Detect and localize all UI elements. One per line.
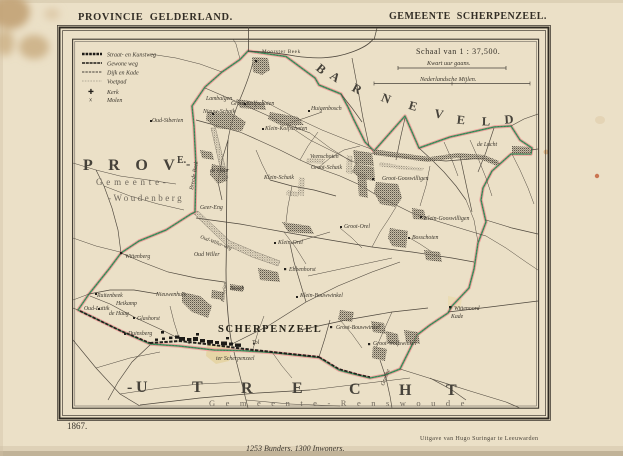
svg-text:☓: ☓ <box>89 98 92 104</box>
svg-text:Klein-Schaik: Klein-Schaik <box>263 175 294 181</box>
svg-text:Gemeente-Renswoude: Gemeente-Renswoude <box>209 398 475 408</box>
svg-text:PROVINCIE GELDERLAND.: PROVINCIE GELDERLAND. <box>78 12 233 23</box>
svg-text:1867.: 1867. <box>67 421 87 431</box>
svg-text:E: E <box>456 113 466 128</box>
svg-text:Schaal van 1 : 37,500.: Schaal van 1 : 37,500. <box>416 47 500 56</box>
svg-text:Groot-Kolfschoten: Groot-Kolfschoten <box>231 100 274 107</box>
svg-text:de Haag: de Haag <box>109 311 129 317</box>
svg-text:Geer-Eng: Geer-Eng <box>200 205 223 211</box>
svg-text:Veenschoten: Veenschoten <box>310 154 339 160</box>
svg-text:Dijk en Kade: Dijk en Kade <box>106 71 139 77</box>
svg-text:Groot-Schaik: Groot-Schaik <box>311 165 342 171</box>
svg-text:Oud Willer: Oud Willer <box>194 252 220 258</box>
svg-text:R: R <box>241 380 253 397</box>
svg-text:Nieuw-Schaik: Nieuw-Schaik <box>202 109 236 115</box>
svg-text:Bosschoten: Bosschoten <box>412 235 439 241</box>
svg-text:Uitgave van Hugo Suringar te L: Uitgave van Hugo Suringar te Leeuwarden <box>420 436 538 442</box>
svg-text:Klein-Gooswilligen: Klein-Gooswilligen <box>423 216 470 222</box>
svg-text:C: C <box>349 381 361 398</box>
svg-text:Ebbenhorst: Ebbenhorst <box>288 267 316 273</box>
svg-text:Tol: Tol <box>252 340 260 346</box>
svg-text:-Woudenberg: -Woudenberg <box>108 193 184 203</box>
svg-text:Nederlandsche Mijlen.: Nederlandsche Mijlen. <box>419 76 476 83</box>
svg-text:de Lucht: de Lucht <box>477 142 498 148</box>
svg-text:SCHERPENZEEL: SCHERPENZEEL <box>218 324 322 335</box>
svg-text:Groot-Bouwwinkel: Groot-Bouwwinkel <box>336 325 380 331</box>
svg-text:Groot-Wolfswinkel: Groot-Wolfswinkel <box>373 340 417 347</box>
svg-text:E: E <box>292 380 303 397</box>
svg-text:Kade: Kade <box>450 314 464 320</box>
svg-text:L: L <box>482 114 491 128</box>
svg-text:de Haar: de Haar <box>210 168 230 174</box>
svg-text:Moorster Beek: Moorster Beek <box>262 49 301 55</box>
svg-text:PROV: PROV <box>83 157 190 174</box>
svg-text:Kerk: Kerk <box>106 90 119 96</box>
svg-text:T: T <box>446 382 457 399</box>
svg-text:✚: ✚ <box>88 88 94 96</box>
svg-text:Oud-Luttik: Oud-Luttik <box>84 306 110 312</box>
svg-text:-: - <box>186 156 190 171</box>
svg-text:Molen: Molen <box>106 98 122 104</box>
svg-text:Heikamp: Heikamp <box>115 301 137 307</box>
svg-text:Ruitenbeek: Ruitenbeek <box>96 293 123 299</box>
svg-text:Lambalgen: Lambalgen <box>205 96 232 102</box>
svg-text:Straat- en Kunstweg: Straat- en Kunstweg <box>107 53 156 59</box>
svg-text:Duinsberg: Duinsberg <box>127 331 152 337</box>
svg-text:GEMEENTE SCHERPENZEEL.: GEMEENTE SCHERPENZEEL. <box>389 11 547 22</box>
svg-text:U: U <box>136 379 148 396</box>
svg-text:Voetpad: Voetpad <box>107 80 127 86</box>
svg-text:Klein-Orel: Klein-Orel <box>277 240 303 246</box>
svg-text:Klein-Bouwwinkel: Klein-Bouwwinkel <box>299 293 343 299</box>
svg-text:Klein-Kolfschoten: Klein-Kolfschoten <box>264 125 307 132</box>
svg-text:T: T <box>192 379 203 396</box>
svg-text:Kwart uur gaans.: Kwart uur gaans. <box>426 60 471 67</box>
svg-text:Groot-Orel: Groot-Orel <box>344 224 370 230</box>
svg-text:Gemeente-: Gemeente- <box>96 177 170 187</box>
svg-text:Glashorst: Glashorst <box>137 316 160 322</box>
svg-text:Gewone weg: Gewone weg <box>107 62 138 68</box>
svg-text:ter Scherpenzeel: ter Scherpenzeel <box>216 356 255 362</box>
svg-text:Bosch: Bosch <box>230 286 244 292</box>
svg-text:Groot-Gooswilligen: Groot-Gooswilligen <box>382 176 429 182</box>
svg-text:Oud-Siberien: Oud-Siberien <box>152 118 183 124</box>
svg-text:H: H <box>399 382 412 399</box>
svg-text:-: - <box>127 379 132 396</box>
svg-text:D: D <box>504 112 514 127</box>
svg-text:Wittenberg: Wittenberg <box>125 254 150 260</box>
svg-text:Huigenbosch: Huigenbosch <box>310 106 342 112</box>
svg-text:1253 Bunders. 1300 Inwoners.: 1253 Bunders. 1300 Inwoners. <box>246 444 344 453</box>
svg-text:Nieuwenhuis: Nieuwenhuis <box>155 292 187 298</box>
svg-text:Wittenoord: Wittenoord <box>454 306 480 312</box>
